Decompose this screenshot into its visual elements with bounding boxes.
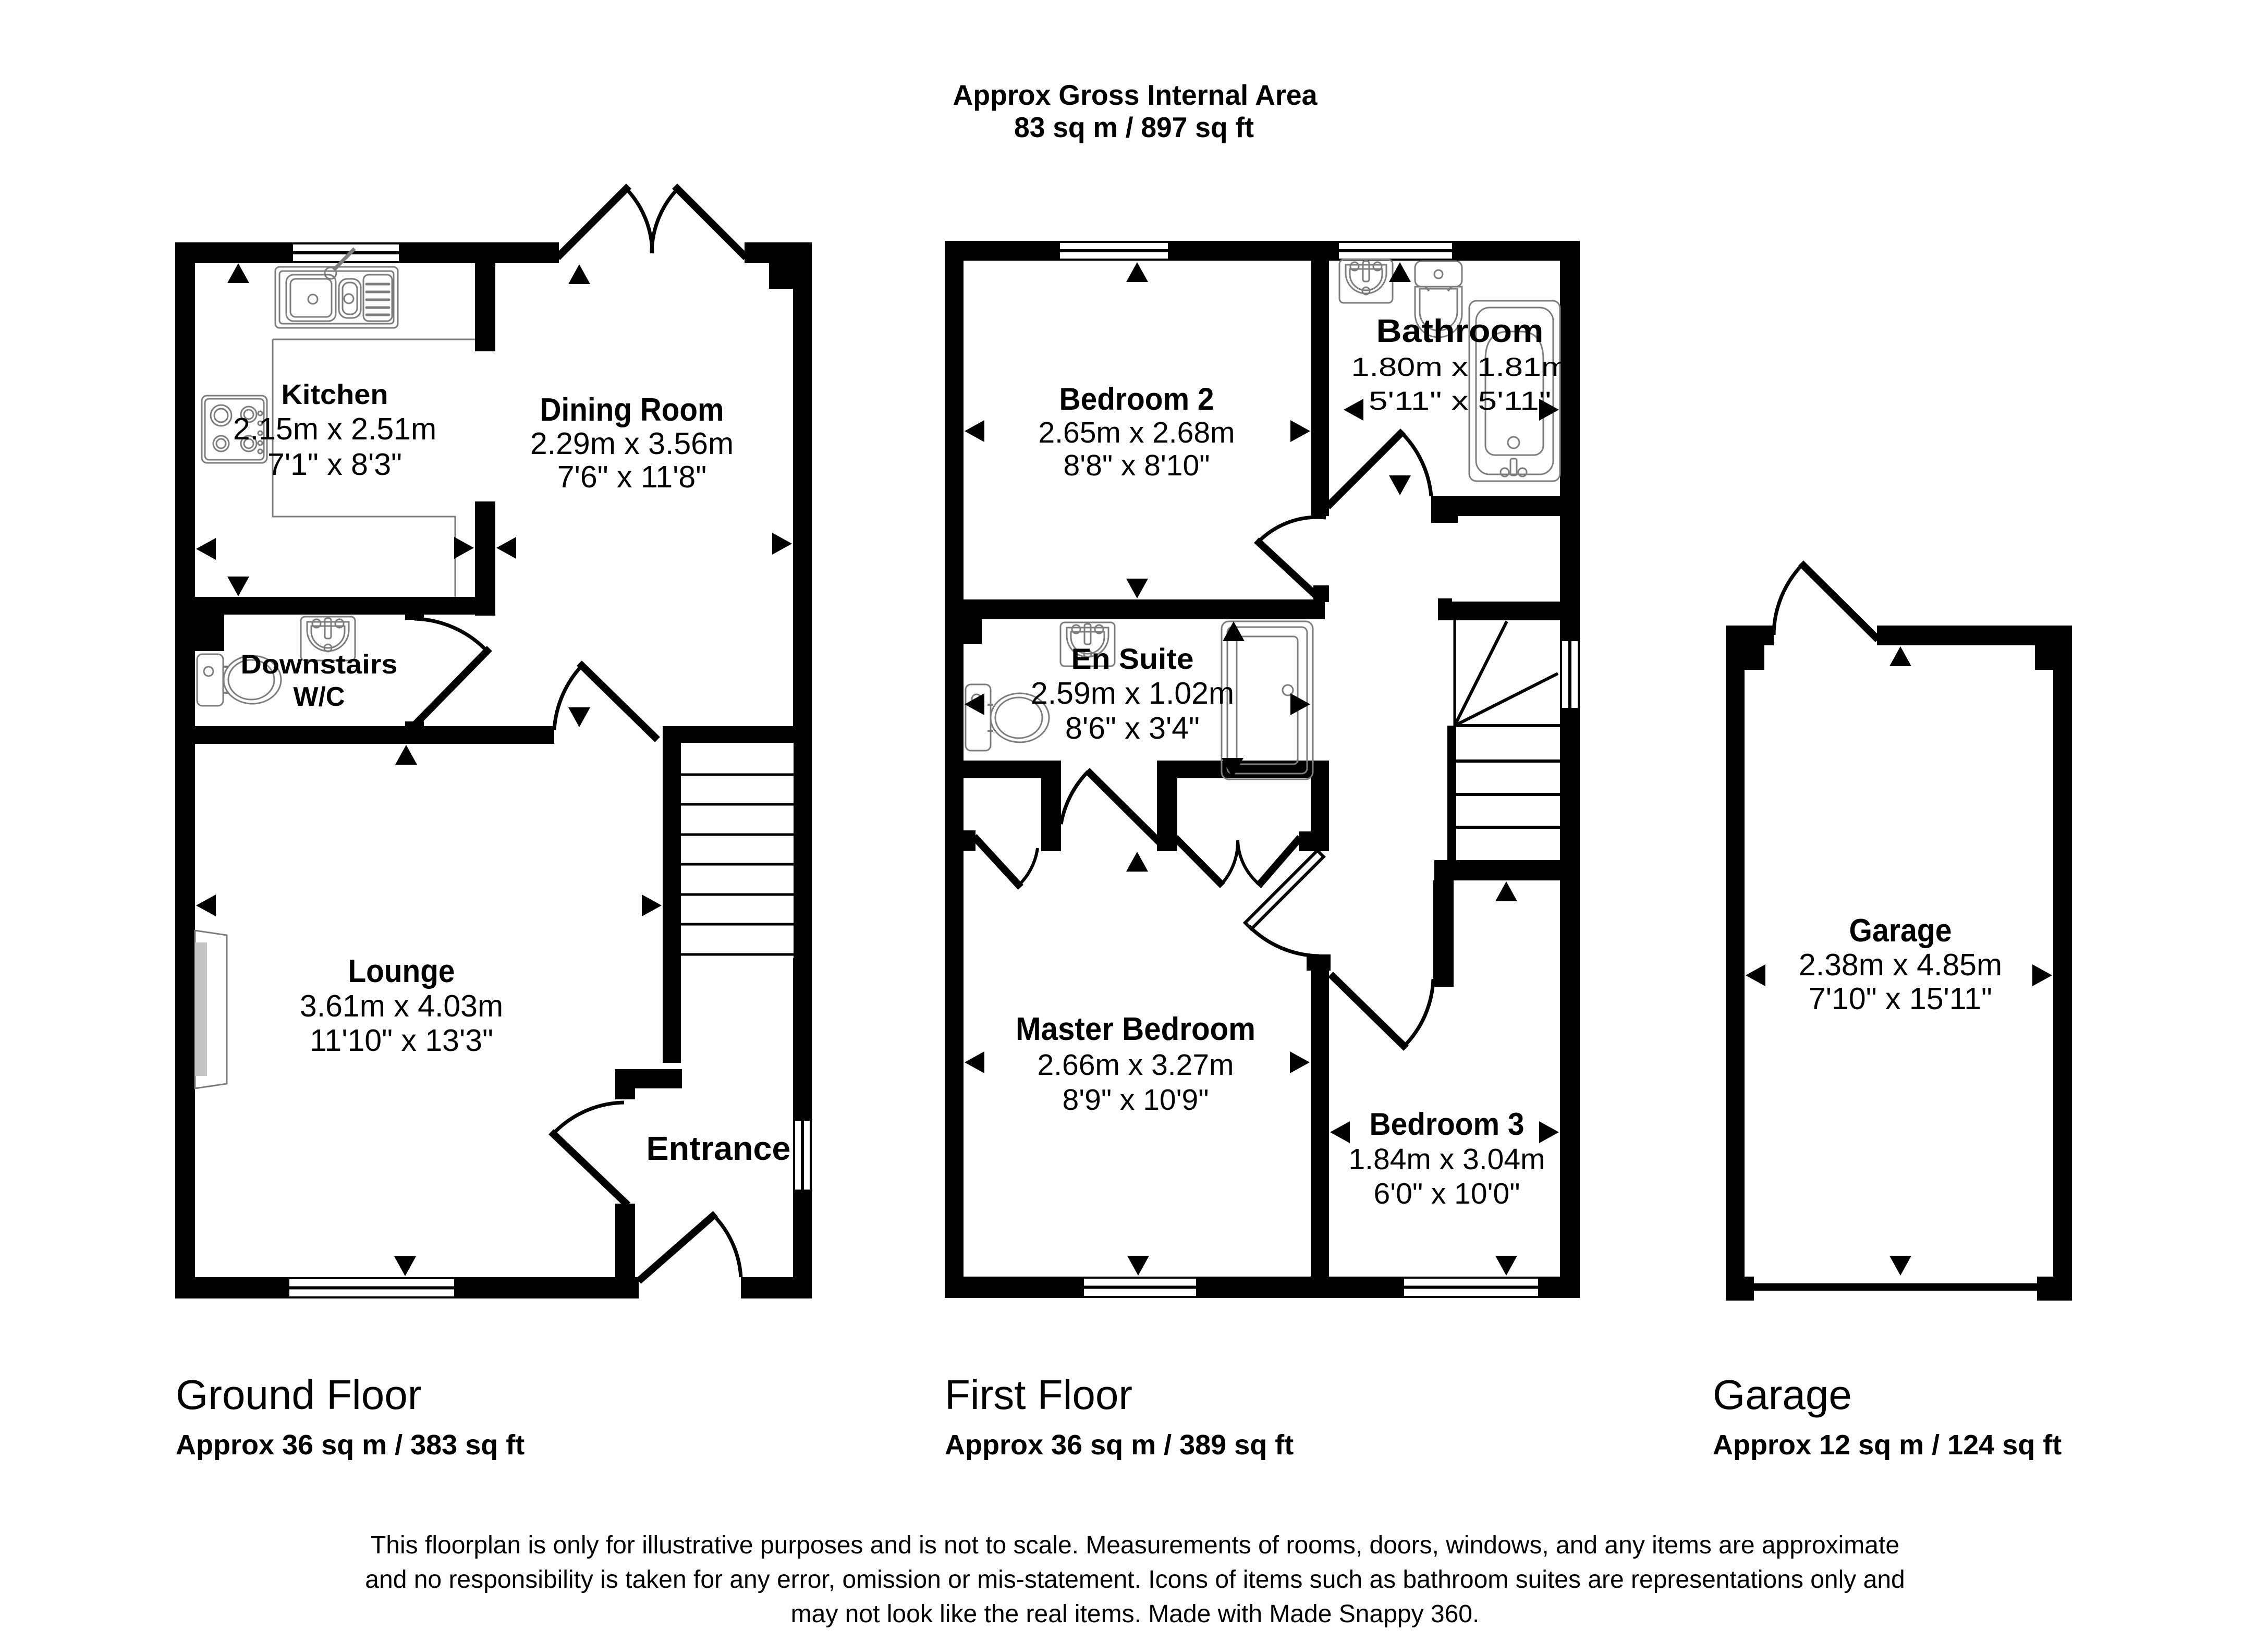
- svg-text:2.65m x 2.68m: 2.65m x 2.68m: [1038, 416, 1235, 449]
- svg-text:7'6" x 11'8": 7'6" x 11'8": [557, 460, 706, 494]
- svg-text:8'8" x 8'10": 8'8" x 8'10": [1064, 449, 1210, 482]
- svg-text:First Floor: First Floor: [945, 1371, 1132, 1418]
- svg-text:This floorplan is only for ill: This floorplan is only for illustrative …: [371, 1531, 1899, 1559]
- svg-text:Approx 36 sq m / 383 sq ft: Approx 36 sq m / 383 sq ft: [176, 1429, 525, 1461]
- svg-text:Approx 12 sq m / 124 sq ft: Approx 12 sq m / 124 sq ft: [1713, 1429, 2062, 1461]
- svg-text:11'10" x 13'3": 11'10" x 13'3": [310, 1023, 493, 1058]
- svg-text:1.84m x 3.04m: 1.84m x 3.04m: [1348, 1143, 1545, 1176]
- svg-text:W/C: W/C: [294, 682, 345, 712]
- svg-text:Bathroom: Bathroom: [1376, 313, 1544, 349]
- svg-text:8'6" x 3'4": 8'6" x 3'4": [1065, 711, 1200, 745]
- svg-text:Garage: Garage: [1713, 1371, 1852, 1418]
- svg-text:7'10" x 15'11": 7'10" x 15'11": [1809, 982, 1992, 1016]
- svg-text:and no responsibility is taken: and no responsibility is taken for any e…: [365, 1566, 1905, 1594]
- svg-text:5'11" x 5'11": 5'11" x 5'11": [1369, 386, 1551, 415]
- svg-text:Approx Gross Internal Area: Approx Gross Internal Area: [953, 79, 1318, 111]
- svg-text:Garage: Garage: [1849, 913, 1952, 949]
- svg-text:2.15m x 2.51m: 2.15m x 2.51m: [233, 412, 436, 446]
- svg-text:1.80m x 1.81m: 1.80m x 1.81m: [1351, 352, 1569, 382]
- svg-text:Master Bedroom: Master Bedroom: [1016, 1011, 1255, 1047]
- svg-text:Bedroom 3: Bedroom 3: [1370, 1107, 1525, 1142]
- svg-text:Ground Floor: Ground Floor: [176, 1371, 421, 1418]
- svg-text:Entrance: Entrance: [647, 1130, 791, 1167]
- svg-text:Downstairs: Downstairs: [241, 650, 398, 680]
- svg-text:En Suite: En Suite: [1071, 642, 1194, 675]
- svg-text:2.38m x 4.85m: 2.38m x 4.85m: [1799, 948, 2002, 982]
- svg-text:may not look like the real ite: may not look like the real items. Made w…: [791, 1600, 1480, 1628]
- svg-text:7'1" x 8'3": 7'1" x 8'3": [267, 447, 402, 482]
- svg-text:Kitchen: Kitchen: [282, 379, 388, 410]
- svg-text:Approx 36 sq m / 389 sq ft: Approx 36 sq m / 389 sq ft: [945, 1429, 1294, 1461]
- svg-text:83 sq m / 897 sq ft: 83 sq m / 897 sq ft: [1014, 111, 1254, 143]
- svg-text:2.66m x 3.27m: 2.66m x 3.27m: [1037, 1048, 1234, 1082]
- svg-text:Lounge: Lounge: [348, 953, 455, 989]
- svg-text:Bedroom 2: Bedroom 2: [1059, 382, 1214, 416]
- svg-text:Dining Room: Dining Room: [540, 392, 724, 428]
- svg-text:3.61m x 4.03m: 3.61m x 4.03m: [300, 989, 503, 1023]
- svg-text:8'9" x 10'9": 8'9" x 10'9": [1063, 1083, 1209, 1117]
- svg-text:6'0" x 10'0": 6'0" x 10'0": [1374, 1177, 1520, 1210]
- svg-text:2.59m x 1.02m: 2.59m x 1.02m: [1031, 676, 1234, 710]
- svg-text:2.29m x 3.56m: 2.29m x 3.56m: [530, 426, 734, 461]
